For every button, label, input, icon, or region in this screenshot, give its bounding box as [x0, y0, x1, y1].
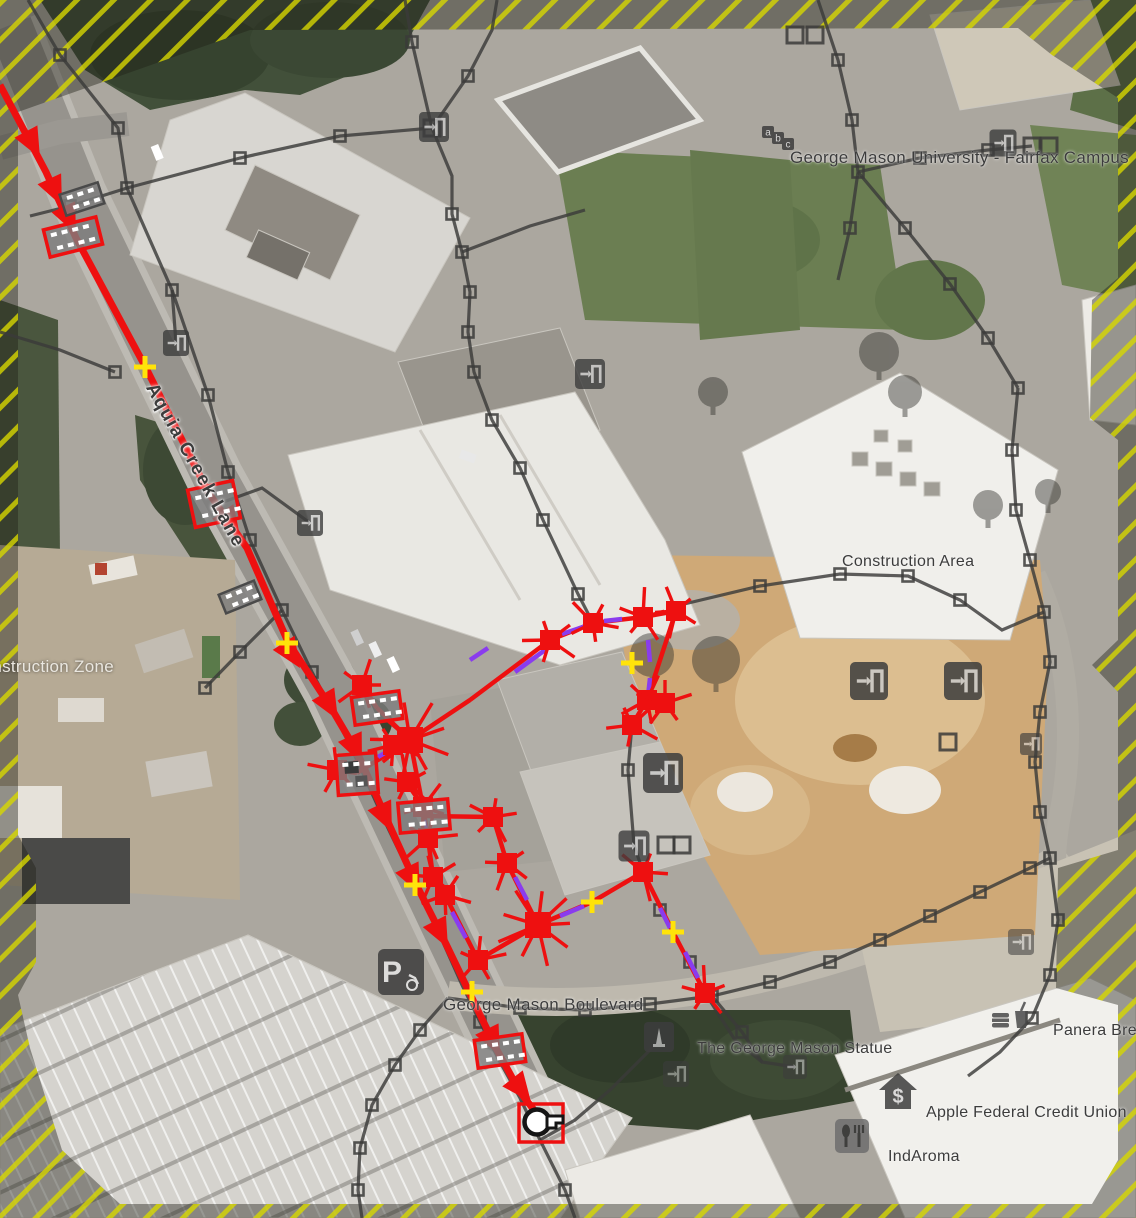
route-highlight-segment: [452, 912, 466, 938]
map-viewport[interactable]: abcP$ George Mason University - Fairfax …: [0, 0, 1136, 1218]
parking-icon[interactable]: P: [378, 949, 424, 995]
route-direction-arrow: [14, 125, 51, 164]
crosswalk-marker-highlighted[interactable]: [336, 753, 379, 796]
route-highlight-segment: [604, 619, 622, 621]
crosswalk-marker[interactable]: [60, 182, 105, 215]
fastfood-icon[interactable]: [992, 1002, 1028, 1028]
route-waypoint[interactable]: [682, 965, 725, 1013]
route-waypoint[interactable]: [470, 798, 517, 842]
entrance-icon[interactable]: [944, 662, 982, 700]
route-highlight-segment: [648, 640, 650, 662]
crosswalk-marker[interactable]: [219, 581, 262, 614]
abc-icon[interactable]: abc: [762, 126, 794, 151]
entrance-icon[interactable]: [619, 831, 650, 862]
entrance-icon[interactable]: [1020, 733, 1042, 755]
entrance-icon[interactable]: [663, 1061, 689, 1087]
path-network-edge: [462, 210, 585, 252]
svg-text:a: a: [765, 128, 771, 139]
monument-icon[interactable]: [644, 1022, 674, 1052]
bank-icon[interactable]: $: [879, 1073, 917, 1109]
route-highlight-segment: [560, 906, 584, 916]
entrance-icon[interactable]: [850, 662, 888, 700]
svg-text:P: P: [382, 956, 402, 989]
crosswalk-marker-highlighted[interactable]: [43, 217, 102, 257]
route-direction-arrow: [312, 688, 350, 727]
entrance-icon[interactable]: [163, 330, 189, 356]
restaurant-icon[interactable]: [835, 1119, 869, 1153]
portal-node[interactable]: [807, 27, 823, 43]
route-waypoint[interactable]: [655, 587, 695, 638]
path-network-edge: [432, 0, 497, 128]
tree-icon: [1035, 479, 1061, 513]
crosswalk-marker-highlighted[interactable]: [188, 480, 243, 527]
entrance-icon[interactable]: [1008, 929, 1034, 955]
route-cross-marker: [581, 891, 603, 913]
portal-node[interactable]: [674, 837, 690, 853]
tree-icon: [698, 377, 728, 415]
entrance-icon[interactable]: [297, 510, 323, 536]
crosswalk-marker-highlighted[interactable]: [474, 1034, 525, 1068]
tree-icon: [859, 332, 899, 380]
entrance-icon[interactable]: [990, 130, 1017, 157]
crosswalk-marker-highlighted[interactable]: [398, 799, 450, 833]
entrance-icon[interactable]: [783, 1055, 807, 1079]
portal-node[interactable]: [787, 27, 803, 43]
route-branch-edge: [470, 640, 550, 700]
path-network-edge: [680, 574, 1044, 630]
route-direction-arrow: [423, 915, 460, 954]
entrance-icon[interactable]: [643, 753, 683, 793]
route-waypoint[interactable]: [498, 891, 570, 966]
tree-icon: [692, 636, 740, 692]
route-highlight-segment: [470, 648, 488, 660]
portal-node[interactable]: [1041, 138, 1057, 154]
path-network-edge: [0, 332, 115, 372]
path-network-edge: [127, 128, 432, 188]
entrance-icon[interactable]: [419, 112, 449, 142]
svg-text:$: $: [892, 1086, 903, 1108]
svg-text:c: c: [786, 140, 791, 151]
route-overlay-layer: abcP$: [0, 0, 1136, 1218]
tree-icon: [973, 490, 1003, 528]
path-network-edge: [205, 610, 282, 688]
crosswalk-marker-highlighted[interactable]: [351, 691, 402, 725]
path-network-edge: [432, 128, 593, 623]
path-network-edge: [358, 998, 448, 1218]
entrance-icon[interactable]: [575, 359, 605, 389]
tree-icon: [888, 375, 922, 417]
path-network-edge: [540, 1040, 660, 1140]
portal-node[interactable]: [940, 734, 956, 750]
path-network-edge: [405, 0, 432, 128]
svg-text:b: b: [775, 134, 781, 145]
portal-node[interactable]: [658, 837, 674, 853]
route-waypoint[interactable]: [485, 837, 527, 890]
route-cross-marker: [662, 921, 684, 943]
